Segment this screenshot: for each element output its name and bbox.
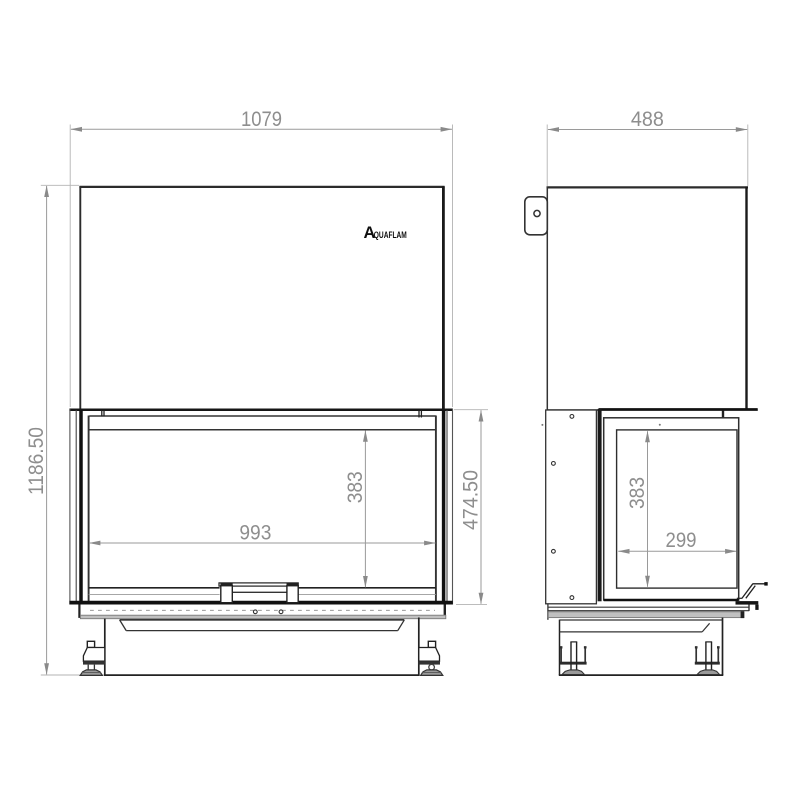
svg-text:QUAFLAM: QUAFLAM [374,230,407,240]
svg-text:383: 383 [626,477,649,509]
svg-text:1186.50: 1186.50 [25,427,48,495]
svg-text:383: 383 [344,471,367,503]
svg-text:1079: 1079 [241,108,282,131]
svg-text:488: 488 [631,108,664,131]
svg-text:474.50: 474.50 [460,470,483,530]
svg-text:993: 993 [239,521,271,544]
svg-text:299: 299 [666,529,697,552]
